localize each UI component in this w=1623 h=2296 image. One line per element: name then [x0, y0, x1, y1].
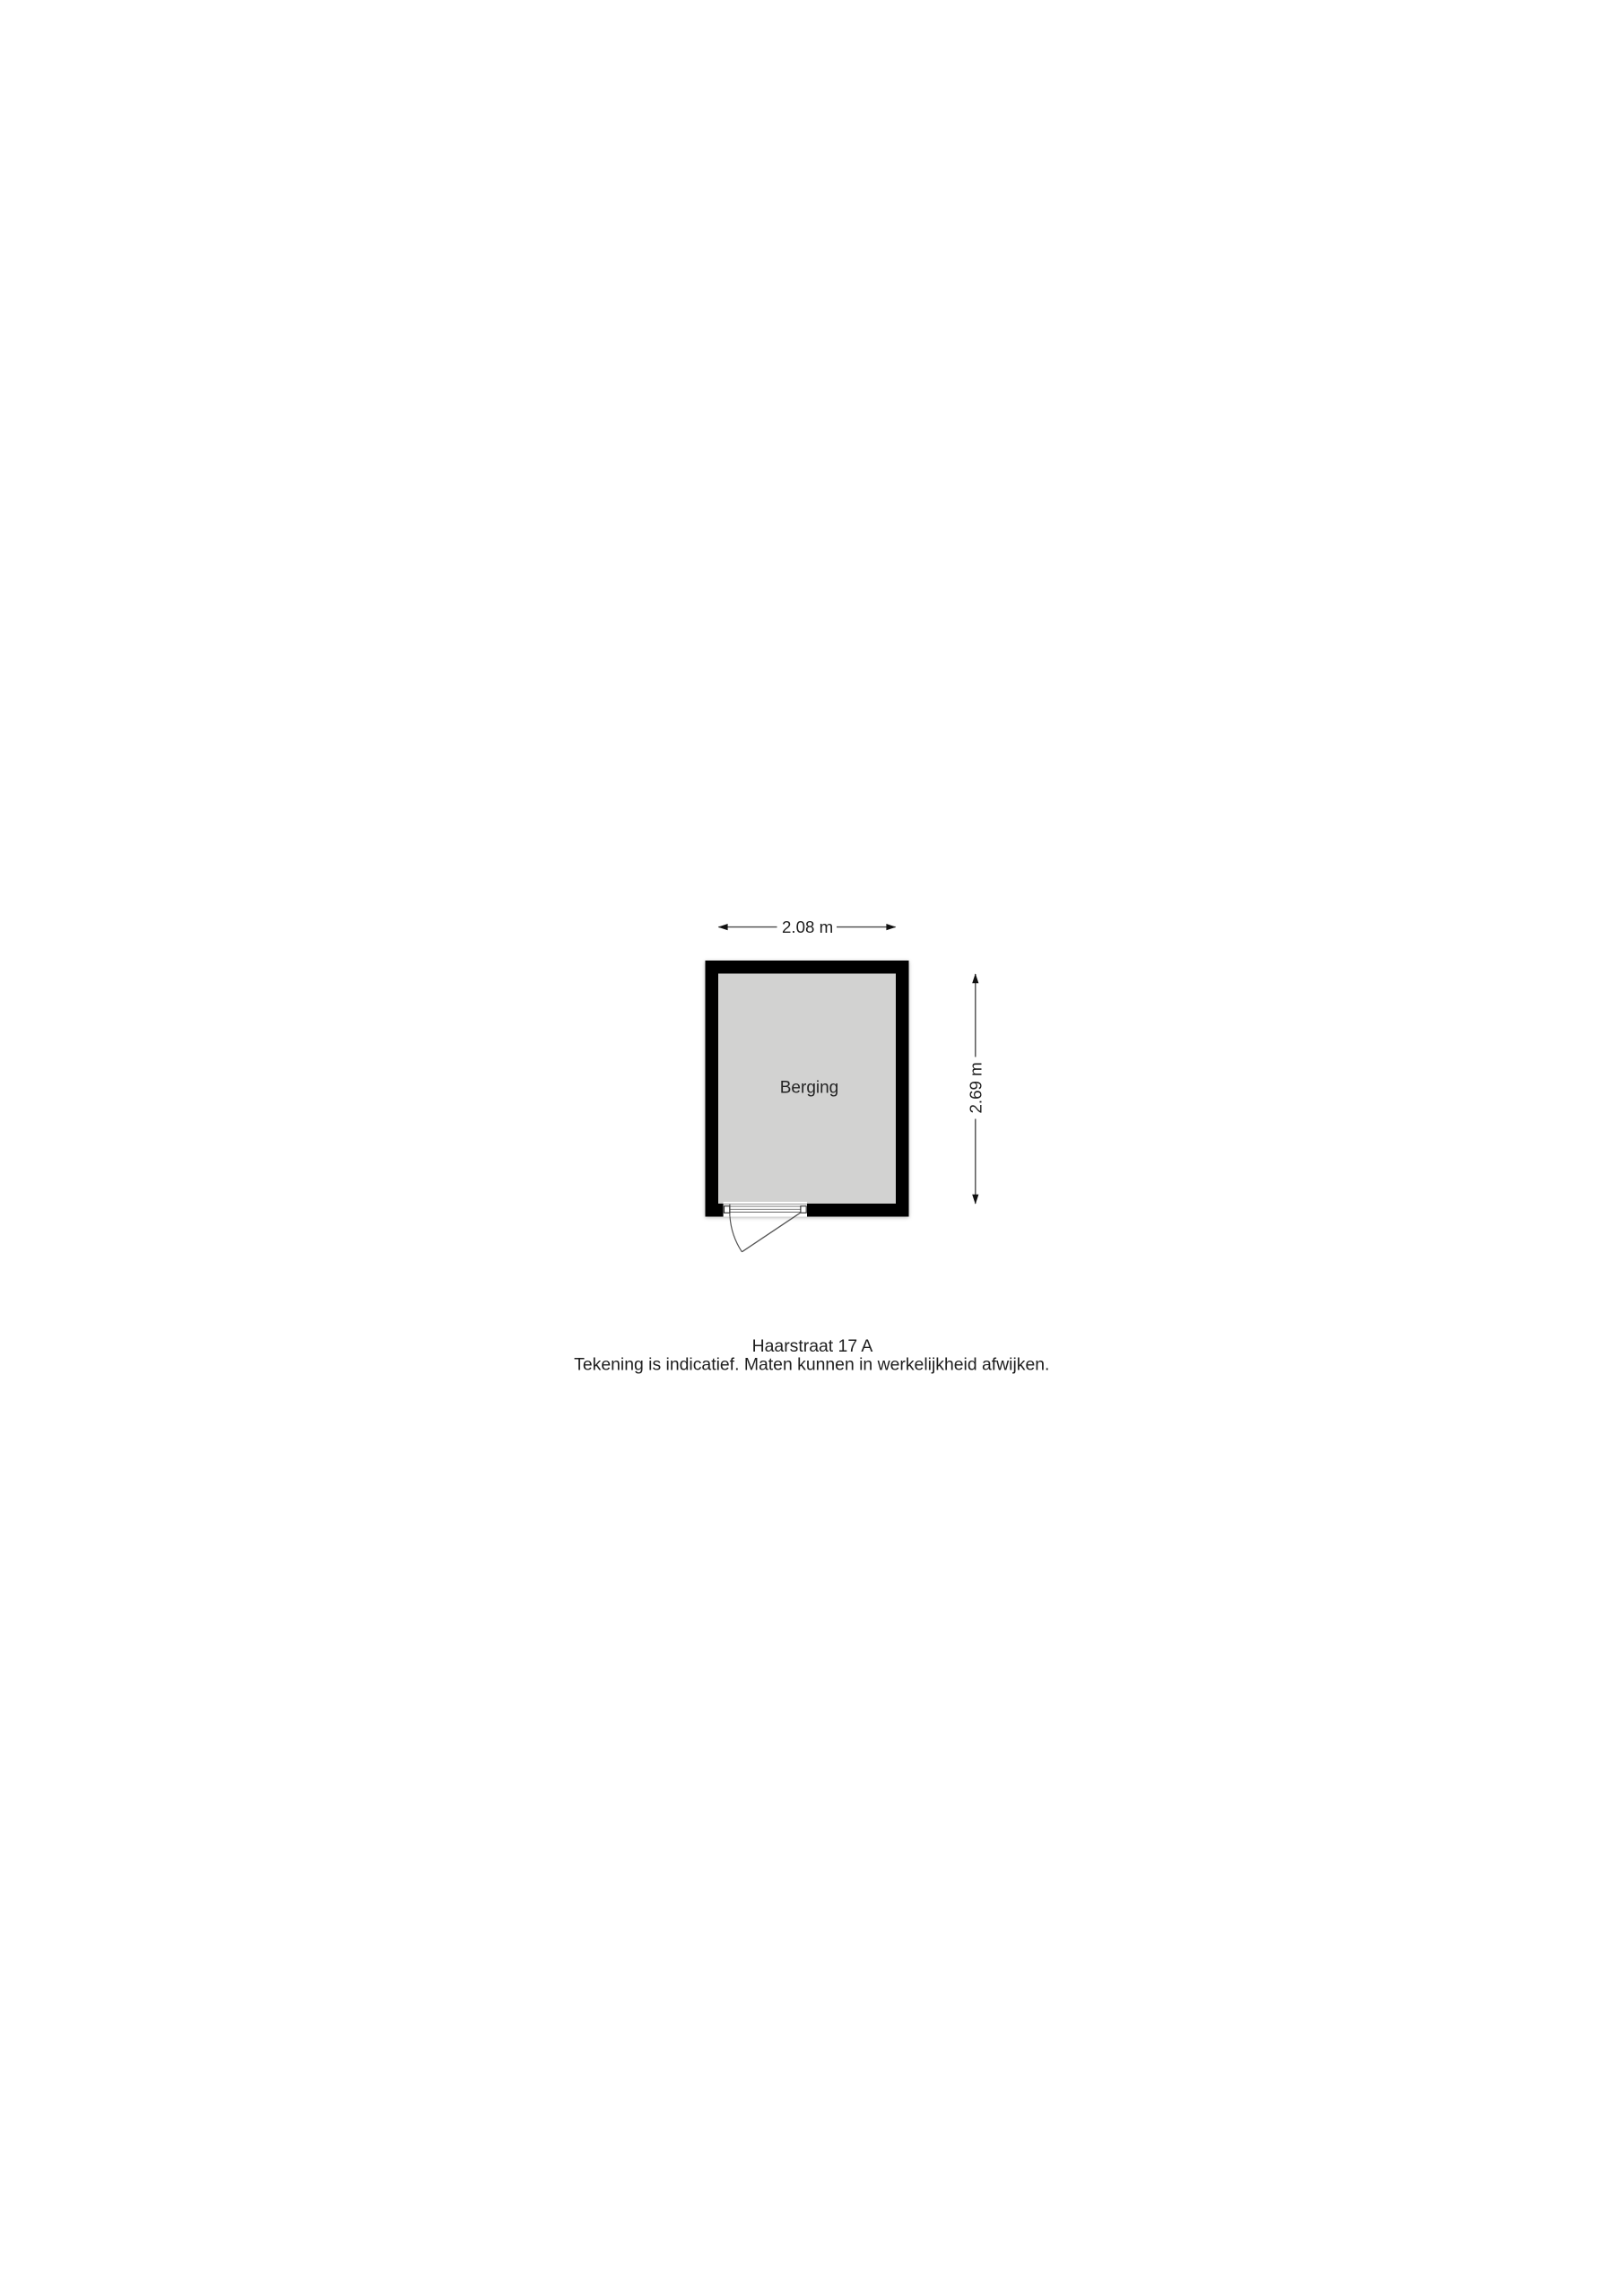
svg-text:Berging: Berging — [780, 1078, 839, 1097]
svg-text:2.08 m: 2.08 m — [782, 918, 833, 936]
svg-text:2.69 m: 2.69 m — [966, 1062, 985, 1113]
svg-text:Haarstraat 17 A: Haarstraat 17 A — [752, 1336, 873, 1356]
svg-text:Tekening is indicatief. Maten: Tekening is indicatief. Maten kunnen in … — [574, 1355, 1049, 1375]
